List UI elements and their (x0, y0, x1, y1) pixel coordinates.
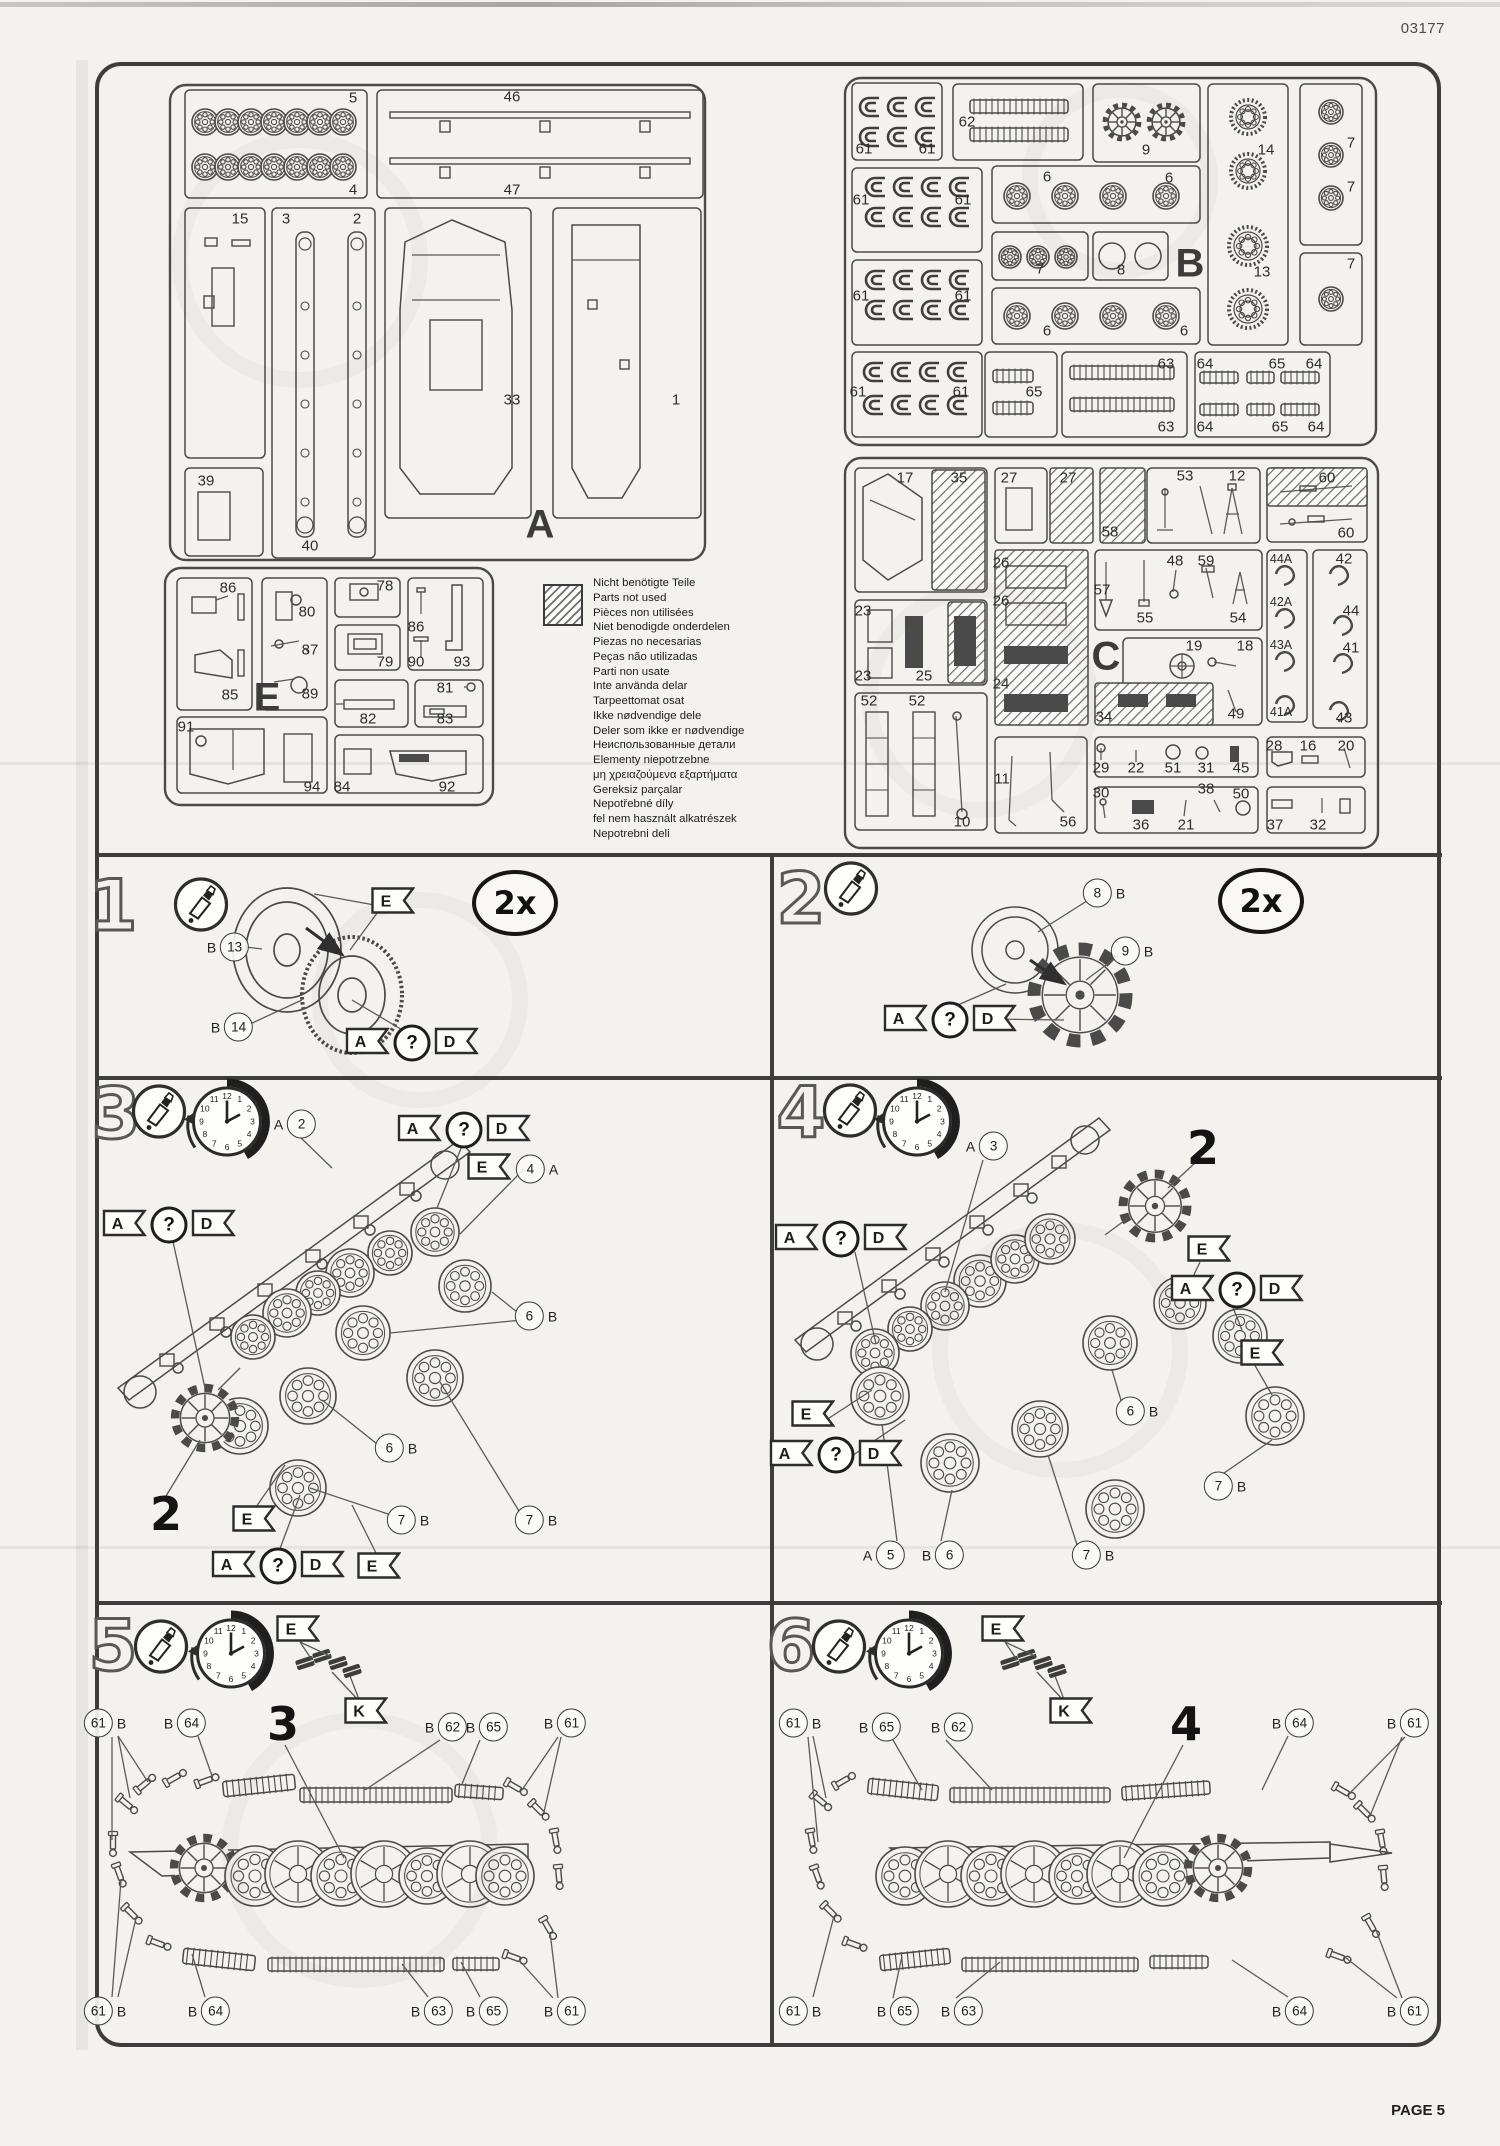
glue-icon (810, 1618, 868, 1681)
svg-text:6: 6 (229, 1674, 234, 1684)
svg-text:A: A (221, 1557, 233, 1574)
svg-text:10: 10 (200, 1104, 210, 1114)
part-number-label: 92 (439, 779, 456, 796)
part-number-label: 6 (1043, 323, 1051, 340)
part-callout-circle: 2 (287, 1110, 316, 1139)
svg-text:A: A (784, 1230, 796, 1247)
part-callout: B63 (941, 1997, 983, 2026)
part-number-label: 44A (1270, 552, 1292, 566)
part-number-label: 64 (1306, 356, 1323, 373)
part-number-label: 20 (1338, 738, 1355, 755)
part-number-label: 13 (1254, 264, 1271, 281)
part-number-label: 78 (377, 578, 394, 595)
part-callout: A2 (274, 1110, 316, 1139)
svg-text:D: D (982, 1011, 994, 1028)
part-callout: B6 (922, 1541, 964, 1570)
part-number-label: 7 (1036, 261, 1044, 278)
part-number-label: 7 (1347, 256, 1355, 273)
part-number-label: 35 (951, 470, 968, 487)
part-number-label: 81 (437, 680, 454, 697)
svg-text:9: 9 (881, 1648, 886, 1658)
svg-text:10: 10 (890, 1104, 900, 1114)
part-number-label: 58 (1102, 524, 1119, 541)
part-callout: 7B (1204, 1472, 1246, 1501)
part-callout-circle: 7 (515, 1506, 544, 1535)
part-callout-circle: 61 (557, 1997, 586, 2026)
svg-text:1: 1 (241, 1626, 246, 1636)
part-number-label: 60 (1319, 470, 1336, 487)
part-callout: B65 (466, 1997, 508, 2026)
part-number-label: 61 (853, 192, 870, 209)
part-number-label: 23 (855, 603, 872, 620)
part-number-label: 60 (1338, 525, 1355, 542)
paint-flag-icon: A (398, 1114, 442, 1141)
svg-text:E: E (367, 1559, 378, 1576)
svg-text:4: 4 (251, 1661, 256, 1671)
part-callout-circle: 61 (1400, 1709, 1429, 1738)
legend-line: Неиспользованные детали (593, 738, 744, 753)
part-number-label: 25 (916, 668, 933, 685)
flag-group: E (276, 1615, 320, 1647)
part-number-label: 61 (953, 384, 970, 401)
part-callout: B13 (207, 933, 249, 962)
part-number-label: 14 (1258, 142, 1275, 159)
part-number-label: 4 (349, 182, 357, 199)
flag-group: E (467, 1153, 511, 1185)
paint-flag-icon: E (232, 1505, 276, 1532)
part-callout: 61B (779, 1997, 821, 2026)
part-number-label: 94 (304, 779, 321, 796)
flag-group: E (371, 887, 415, 919)
part-callout-circle: 61 (84, 1709, 113, 1738)
part-number-label: 45 (1233, 760, 1250, 777)
part-number-label: 11 (994, 771, 1010, 788)
svg-text:3: 3 (250, 1116, 255, 1126)
part-number-label: 23 (855, 668, 872, 685)
paint-flag-icon: E (791, 1400, 835, 1427)
svg-text:6: 6 (225, 1142, 230, 1152)
color-question-icon: ? (260, 1548, 297, 1585)
part-callout-circle: 6 (515, 1302, 544, 1331)
svg-text:5: 5 (237, 1138, 242, 1148)
part-number-label: 79 (377, 654, 394, 671)
part-number-label: 38 (1198, 781, 1215, 798)
svg-text:3: 3 (254, 1648, 259, 1658)
svg-text:9: 9 (203, 1648, 208, 1658)
svg-text:3: 3 (940, 1116, 945, 1126)
flag-group: E (791, 1400, 835, 1432)
flag-group: A? D (346, 1025, 479, 1062)
svg-text:9: 9 (889, 1116, 894, 1126)
legend-line: Peças não utilizadas (593, 650, 744, 665)
track-symbol-flag-icon: K (344, 1697, 388, 1724)
part-callout: 7B (515, 1506, 557, 1535)
svg-text:2: 2 (247, 1104, 252, 1114)
part-callout: B65 (466, 1713, 508, 1742)
part-number-label: 31 (1198, 760, 1215, 777)
part-number-label: 19 (1186, 638, 1203, 655)
flag-group: E (357, 1552, 401, 1584)
part-callout-circle: 7 (1204, 1472, 1233, 1501)
svg-text:D: D (873, 1230, 885, 1247)
part-number-label: 18 (1237, 638, 1254, 655)
svg-text:7: 7 (902, 1138, 907, 1148)
page-label: PAGE 5 (1391, 2102, 1445, 2119)
part-number-label: 65 (1026, 384, 1043, 401)
assembly-ref-2: 2 (150, 1487, 182, 1541)
flag-group: A? D (775, 1221, 908, 1258)
part-callout: 6B (1116, 1397, 1158, 1426)
step-number-2: 2 (777, 858, 826, 940)
part-callout-circle: 6 (375, 1434, 404, 1463)
hatched-square-icon (543, 584, 583, 626)
part-callout: B61 (544, 1709, 586, 1738)
legend-line: μη χρειαζούμενα εξαρτήματα (593, 768, 744, 783)
part-number-label: 87 (302, 642, 319, 659)
time-icon: 123456789101112 (185, 1610, 277, 1707)
part-number-label: 47 (504, 182, 521, 199)
svg-text:6: 6 (915, 1142, 920, 1152)
part-number-label: 54 (1230, 610, 1247, 627)
flag-group: E (1187, 1235, 1231, 1267)
part-number-label: 89 (302, 686, 319, 703)
part-number-label: 26 (993, 555, 1010, 572)
svg-text:5: 5 (919, 1670, 924, 1680)
part-callout: B62 (931, 1713, 973, 1742)
part-number-label: 43A (1270, 638, 1292, 652)
svg-text:4: 4 (929, 1661, 934, 1671)
part-number-label: 27 (1001, 470, 1018, 487)
color-question-icon: ? (394, 1025, 431, 1062)
part-number-label: 61 (856, 141, 873, 158)
legend-line: Inte använda delar (593, 679, 744, 694)
legend-line: Pièces non utilisées (593, 606, 744, 621)
track-symbol-flag-icon: K (1049, 1697, 1093, 1724)
part-callout-circle: 61 (779, 1709, 808, 1738)
part-number-label: 65 (1272, 419, 1289, 436)
paint-flag-icon: A (775, 1223, 819, 1250)
svg-text:E: E (381, 894, 392, 911)
part-number-label: 29 (1093, 760, 1110, 777)
svg-text:D: D (1269, 1281, 1281, 1298)
flag-group: A? D (212, 1548, 345, 1585)
part-callout-circle: 65 (479, 1713, 508, 1742)
legend-line: Gereksiz parçalar (593, 783, 744, 798)
paint-flag-icon: A (770, 1439, 814, 1466)
part-number-label: 1 (672, 392, 680, 409)
part-number-label: 37 (1267, 817, 1284, 834)
paint-flag-icon: D (973, 1004, 1017, 1031)
paint-flag-icon: E (467, 1153, 511, 1180)
part-number-label: 48 (1167, 553, 1184, 570)
part-number-label: 39 (198, 473, 215, 490)
part-number-label: 41 (1343, 640, 1360, 657)
part-number-label: 82 (360, 711, 377, 728)
paint-flag-icon: D (487, 1114, 531, 1141)
part-callout-circle: 63 (424, 1997, 453, 2026)
not-used-legend: Nicht benötigte TeileParts not usedPièce… (543, 576, 744, 842)
legend-line: Nicht benötigte Teile (593, 576, 744, 591)
part-number-label: 43 (1336, 710, 1353, 727)
legend-line: Nepotřebné díly (593, 797, 744, 812)
paint-flag-icon: A (1171, 1274, 1215, 1301)
part-number-label: 61 (955, 288, 972, 305)
time-icon: 123456789101112 (871, 1078, 963, 1175)
svg-text:A: A (112, 1216, 124, 1233)
part-number-label: 46 (504, 89, 521, 106)
part-callout: 8B (1083, 879, 1125, 908)
part-number-label: 85 (222, 687, 239, 704)
part-number-label: 7 (1347, 135, 1355, 152)
sprue-letter-C: C (1092, 635, 1121, 680)
svg-text:11: 11 (892, 1626, 901, 1636)
part-callout-circle: 61 (557, 1709, 586, 1738)
part-callout-circle: 7 (1072, 1541, 1101, 1570)
part-number-label: 86 (408, 619, 425, 636)
not-used-legend-text: Nicht benötigte TeileParts not usedPièce… (593, 576, 744, 842)
part-number-label: 40 (302, 538, 319, 555)
legend-line: Deler som ikke er nødvendige (593, 724, 744, 739)
part-number-label: 42 (1336, 551, 1353, 568)
part-callout: B61 (1387, 1709, 1429, 1738)
color-question-icon: ? (823, 1221, 860, 1258)
paint-flag-icon: A (884, 1004, 928, 1031)
legend-line: Tarpeettomat osat (593, 694, 744, 709)
part-number-label: 9 (1142, 142, 1150, 159)
part-callout: B14 (211, 1013, 253, 1042)
part-number-label: 15 (232, 211, 249, 228)
part-callout: A3 (966, 1132, 1008, 1161)
part-number-label: 51 (1165, 760, 1182, 777)
part-number-label: 63 (1158, 419, 1175, 436)
part-number-label: 64 (1308, 419, 1325, 436)
part-callout-circle: 65 (890, 1997, 919, 2026)
svg-text:4: 4 (937, 1129, 942, 1139)
part-number-label: 53 (1177, 468, 1194, 485)
part-number-label: 7 (1347, 179, 1355, 196)
svg-text:8: 8 (893, 1129, 898, 1139)
part-number-label: 21 (1178, 817, 1195, 834)
svg-text:11: 11 (900, 1094, 909, 1104)
part-number-label: 61 (955, 192, 972, 209)
part-callout-circle: 8 (1083, 879, 1112, 908)
part-callout-circle: 64 (201, 1997, 230, 2026)
glue-icon (132, 1618, 190, 1681)
part-callout: 4A (516, 1155, 558, 1184)
part-number-label: 44 (1343, 603, 1360, 620)
svg-text:3: 3 (932, 1648, 937, 1658)
part-number-label: 59 (1198, 553, 1215, 570)
part-callout: 61B (779, 1709, 821, 1738)
part-number-label: 6 (1180, 323, 1188, 340)
svg-text:A: A (1180, 1281, 1192, 1298)
svg-text:1: 1 (919, 1626, 924, 1636)
part-number-label: 61 (850, 384, 867, 401)
part-callout: B64 (188, 1997, 230, 2026)
svg-text:10: 10 (204, 1636, 214, 1646)
paint-flag-icon: E (371, 887, 415, 914)
paint-flag-icon: D (859, 1439, 903, 1466)
glue-icon (822, 860, 880, 923)
part-callout-circle: 63 (954, 1997, 983, 2026)
svg-text:4: 4 (247, 1129, 252, 1139)
step-number-4: 4 (777, 1072, 826, 1154)
part-number-label: 55 (1137, 610, 1154, 627)
part-callout-circle: 14 (224, 1013, 253, 1042)
multiplier-badge: 2x (472, 870, 558, 936)
legend-line: Niet benodigde onderdelen (593, 620, 744, 635)
flag-group: A? D (1171, 1272, 1304, 1309)
part-number-label: 6 (1043, 169, 1051, 186)
glue-icon (172, 876, 230, 939)
part-callout: B65 (877, 1997, 919, 2026)
svg-text:12: 12 (912, 1091, 922, 1101)
svg-text:D: D (496, 1121, 508, 1138)
part-callout-circle: 65 (872, 1713, 901, 1742)
part-number-label: 64 (1197, 419, 1214, 436)
paint-flag-icon: E (981, 1615, 1025, 1642)
part-callout: A5 (863, 1541, 905, 1570)
paint-flag-icon: D (192, 1209, 236, 1236)
svg-text:1: 1 (237, 1094, 242, 1104)
part-callout-circle: 13 (220, 933, 249, 962)
legend-line: Parti non usate (593, 665, 744, 680)
flag-group: A? D (884, 1002, 1017, 1039)
part-callout: B64 (1272, 1997, 1314, 2026)
part-number-label: 10 (954, 814, 971, 831)
svg-text:K: K (353, 1704, 365, 1721)
part-callout-circle: 64 (177, 1709, 206, 1738)
part-number-label: 52 (861, 693, 878, 710)
part-number-label: 41A (1270, 705, 1292, 719)
part-callout-circle: 64 (1285, 1709, 1314, 1738)
part-callout-circle: 62 (438, 1713, 467, 1742)
legend-line: fel nem használt alkatrészek (593, 812, 744, 827)
part-number-label: 86 (220, 580, 237, 597)
part-number-label: 22 (1128, 760, 1145, 777)
svg-text:A: A (407, 1121, 419, 1138)
part-callout: 6B (515, 1302, 557, 1331)
svg-text:K: K (1058, 1704, 1070, 1721)
svg-text:11: 11 (214, 1626, 223, 1636)
svg-text:2: 2 (937, 1104, 942, 1114)
color-question-icon: ? (932, 1002, 969, 1039)
part-number-label: 17 (897, 470, 914, 487)
paint-flag-icon: E (1187, 1235, 1231, 1262)
legend-line: Nepotrebni deli (593, 827, 744, 842)
svg-text:5: 5 (927, 1138, 932, 1148)
svg-text:9: 9 (199, 1116, 204, 1126)
svg-text:8: 8 (885, 1661, 890, 1671)
svg-text:A: A (893, 1011, 905, 1028)
part-number-label: 63 (1158, 356, 1175, 373)
svg-text:12: 12 (222, 1091, 232, 1101)
legend-line: Parts not used (593, 591, 744, 606)
part-callout-circle: 61 (779, 1997, 808, 2026)
part-callout: B64 (1272, 1709, 1314, 1738)
paint-flag-icon: E (357, 1552, 401, 1579)
svg-text:2: 2 (251, 1636, 256, 1646)
part-number-label: 65 (1269, 356, 1286, 373)
flag-group: A? D (770, 1437, 903, 1474)
part-number-label: 36 (1133, 817, 1150, 834)
part-number-label: 91 (178, 719, 195, 736)
paint-flag-icon: D (435, 1027, 479, 1054)
part-number-label: 56 (1060, 814, 1077, 831)
part-number-label: 90 (408, 654, 425, 671)
paint-flag-icon: A (103, 1209, 147, 1236)
assembly-ref-2: 2 (1187, 1121, 1219, 1175)
svg-text:2: 2 (929, 1636, 934, 1646)
part-number-label: 26 (993, 593, 1010, 610)
part-callout: B65 (859, 1713, 901, 1742)
part-number-label: 16 (1300, 738, 1317, 755)
multiplier-badge: 2x (1218, 868, 1304, 934)
section-divider (95, 853, 1442, 857)
part-number-label: 27 (1060, 470, 1077, 487)
part-callout: B63 (411, 1997, 453, 2026)
svg-text:7: 7 (212, 1138, 217, 1148)
part-callout-circle: 62 (944, 1713, 973, 1742)
part-number-label: 28 (1266, 738, 1283, 755)
time-icon: 123456789101112 (863, 1610, 955, 1707)
sprue-letter-E: E (254, 676, 281, 721)
legend-line: Elementy niepotrzebne (593, 753, 744, 768)
paint-flag-icon: D (301, 1550, 345, 1577)
color-question-icon: ? (446, 1112, 483, 1149)
part-callout-circle: 61 (1400, 1997, 1429, 2026)
flag-group: E (1240, 1339, 1284, 1371)
part-number-label: 52 (909, 693, 926, 710)
part-number-label: 61 (919, 141, 936, 158)
part-number-label: 61 (853, 288, 870, 305)
sprue-letter-B: B (1176, 242, 1205, 287)
step-number-6: 6 (767, 1605, 816, 1687)
part-callout: B61 (1387, 1997, 1429, 2026)
color-question-icon: ? (818, 1437, 855, 1474)
part-callout-circle: 61 (84, 1997, 113, 2026)
legend-line: Piezas no necesarias (593, 635, 744, 650)
svg-text:E: E (477, 1160, 488, 1177)
part-number-label: 80 (299, 604, 316, 621)
part-number-label: 50 (1233, 786, 1250, 803)
part-number-label: 34 (1096, 709, 1113, 726)
svg-text:11: 11 (210, 1094, 219, 1104)
part-callout: B61 (544, 1997, 586, 2026)
time-icon: 123456789101112 (181, 1078, 273, 1175)
flag-group: E (981, 1615, 1025, 1647)
part-callout: B62 (425, 1713, 467, 1742)
paint-flag-icon: E (276, 1615, 320, 1642)
part-number-label: 12 (1229, 468, 1246, 485)
part-callout-circle: 9 (1111, 937, 1140, 966)
sprue-letter-A: A (526, 503, 555, 548)
part-callout-circle: 65 (479, 1997, 508, 2026)
svg-text:D: D (310, 1557, 322, 1574)
step-number-5: 5 (89, 1605, 138, 1687)
paint-flag-icon: A (346, 1027, 390, 1054)
svg-text:E: E (286, 1622, 297, 1639)
part-number-label: 6 (1165, 170, 1173, 187)
svg-text:7: 7 (894, 1670, 899, 1680)
flag-group: A? D (103, 1207, 236, 1244)
svg-text:8: 8 (203, 1129, 208, 1139)
part-callout-circle: 4 (516, 1155, 545, 1184)
svg-text:D: D (444, 1034, 456, 1051)
part-callout-circle: 7 (387, 1506, 416, 1535)
svg-text:8: 8 (207, 1661, 212, 1671)
svg-text:12: 12 (904, 1623, 914, 1633)
